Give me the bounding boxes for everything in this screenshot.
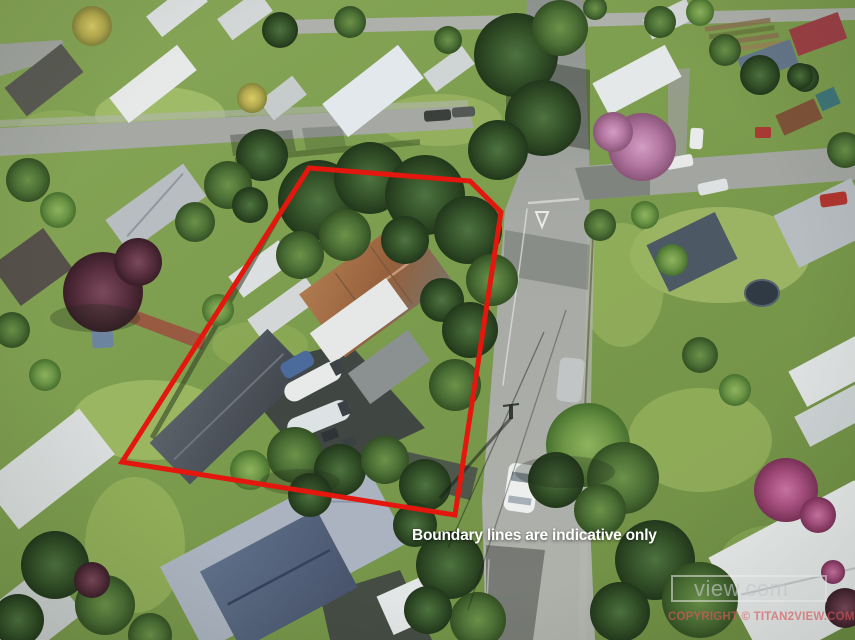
buildings-west (0, 164, 321, 341)
white-car (689, 128, 703, 150)
magenta-tree (800, 497, 836, 533)
maroon-tree (114, 238, 162, 286)
tree (682, 337, 718, 373)
tree (6, 158, 50, 202)
tree (128, 613, 172, 640)
tree (29, 359, 61, 391)
tree (0, 312, 30, 348)
tree (656, 244, 688, 276)
tree (584, 209, 616, 241)
tree (40, 192, 76, 228)
tree (262, 12, 298, 48)
tree (319, 209, 371, 261)
tree (719, 374, 751, 406)
watermark-copyright: COPYRIGHT © TITAN2VIEW.COM (668, 611, 850, 623)
aerial-photo: Boundary lines are indicative only view.… (0, 0, 855, 640)
tree (334, 6, 366, 38)
tree (442, 302, 498, 358)
teal-shed (815, 87, 841, 112)
rusty-roof-shed (775, 98, 822, 135)
watermark-box: view.com (671, 575, 827, 602)
tree (434, 26, 462, 54)
brown-shed (0, 228, 73, 306)
dark-car (424, 109, 452, 122)
grey-car (452, 106, 476, 118)
tree (468, 120, 528, 180)
tree (631, 201, 659, 229)
tree (404, 586, 452, 634)
tree (740, 55, 780, 95)
house-roof (146, 0, 208, 37)
tree (590, 582, 650, 640)
tree (399, 459, 451, 511)
tree (237, 83, 267, 113)
tree (175, 202, 215, 242)
tree (644, 6, 676, 38)
tree (709, 34, 741, 66)
tree (381, 216, 429, 264)
watermark-box-text: view.com (694, 578, 788, 600)
tree (232, 187, 268, 223)
maroon-tree (74, 562, 110, 598)
tree (532, 0, 588, 56)
tree (276, 231, 324, 279)
trampoline (745, 280, 779, 306)
boundary-disclaimer-text: Boundary lines are indicative only (412, 527, 657, 545)
tree (72, 6, 112, 46)
pink-tree (593, 112, 633, 152)
parked-car (556, 357, 585, 403)
palm-tree (787, 63, 813, 89)
red-car (755, 127, 771, 138)
